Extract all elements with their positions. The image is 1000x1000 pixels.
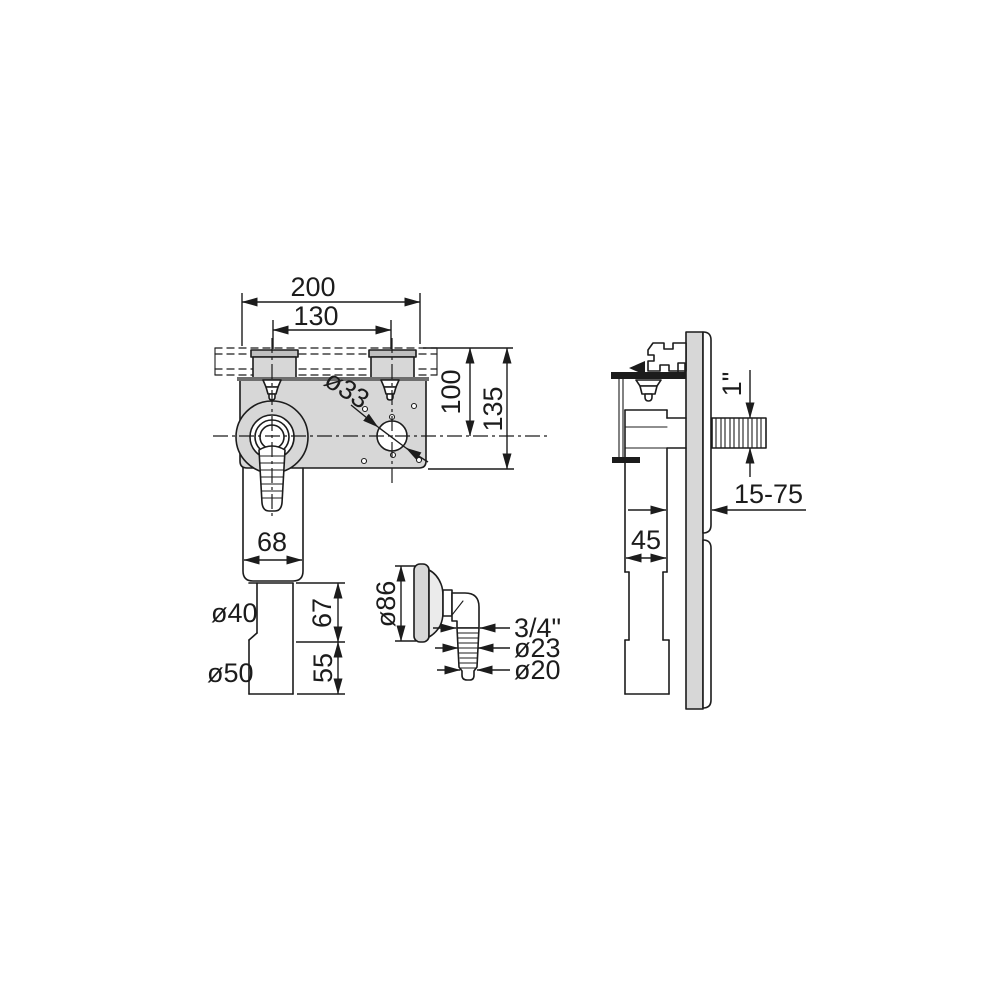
- dim-inlet-thread-label: 1": [717, 372, 747, 397]
- dim-rail-to-axis-label: 100: [436, 369, 466, 414]
- elbow-flange: [414, 564, 452, 642]
- strap-clamp: [612, 457, 640, 463]
- dimension-housing-width: 68: [244, 527, 302, 560]
- drawing-canvas: 200 130 100 135 ø33 68: [0, 0, 1000, 1000]
- dim-housing-width-label: 68: [257, 527, 287, 557]
- outlet-sleeve-side: [625, 640, 669, 694]
- outlet-sleeve-front: [249, 640, 293, 694]
- dim-rail-to-plate-edge-label: 135: [478, 386, 508, 431]
- side-view: 1" 15-75 45: [611, 332, 806, 709]
- technical-drawing: 200 130 100 135 ø33 68: [0, 0, 1000, 1000]
- dim-sleeve-length-label: 55: [308, 653, 338, 683]
- dimension-flange-dia: ø86: [371, 566, 416, 641]
- dimension-barb-20: ø20: [437, 655, 561, 685]
- threaded-inlet: [712, 418, 766, 448]
- label-outlet-dia: ø40: [211, 598, 258, 628]
- dim-screw-spacing-label: 130: [293, 301, 338, 331]
- dim-overall-width-label: 200: [290, 272, 335, 302]
- dim-wall-depth-range-label: 15-75: [734, 479, 803, 509]
- mounting-rail-profile: [648, 343, 686, 371]
- dimension-sleeve-length: 55: [297, 642, 345, 694]
- outlet-pipe-side: [629, 572, 663, 640]
- dim-housing-depth-label: 45: [631, 525, 661, 555]
- hose-elbow-detail: ø86 3/4" ø23 ø20: [371, 564, 561, 685]
- dim-flange-dia-label: ø86: [371, 581, 401, 628]
- elbow-body: [452, 593, 479, 628]
- elbow-hub: [443, 590, 452, 616]
- dim-barb-20-label: ø20: [514, 655, 561, 685]
- dimension-housing-depth: 45: [626, 525, 666, 558]
- front-view: 200 130 100 135 ø33 68: [207, 272, 548, 694]
- elbow-hose-barb: [457, 628, 479, 680]
- wall-plate-side: [686, 332, 711, 709]
- hanger-strap: [612, 379, 640, 463]
- label-sleeve-dia: ø50: [207, 658, 254, 688]
- dimension-wall-depth-range: 15-75: [628, 479, 806, 510]
- bracket-nut: [636, 380, 661, 401]
- dimension-outlet-length: 67: [296, 583, 345, 642]
- dimension-screw-spacing: 130: [273, 301, 391, 349]
- dim-outlet-length-label: 67: [307, 598, 337, 628]
